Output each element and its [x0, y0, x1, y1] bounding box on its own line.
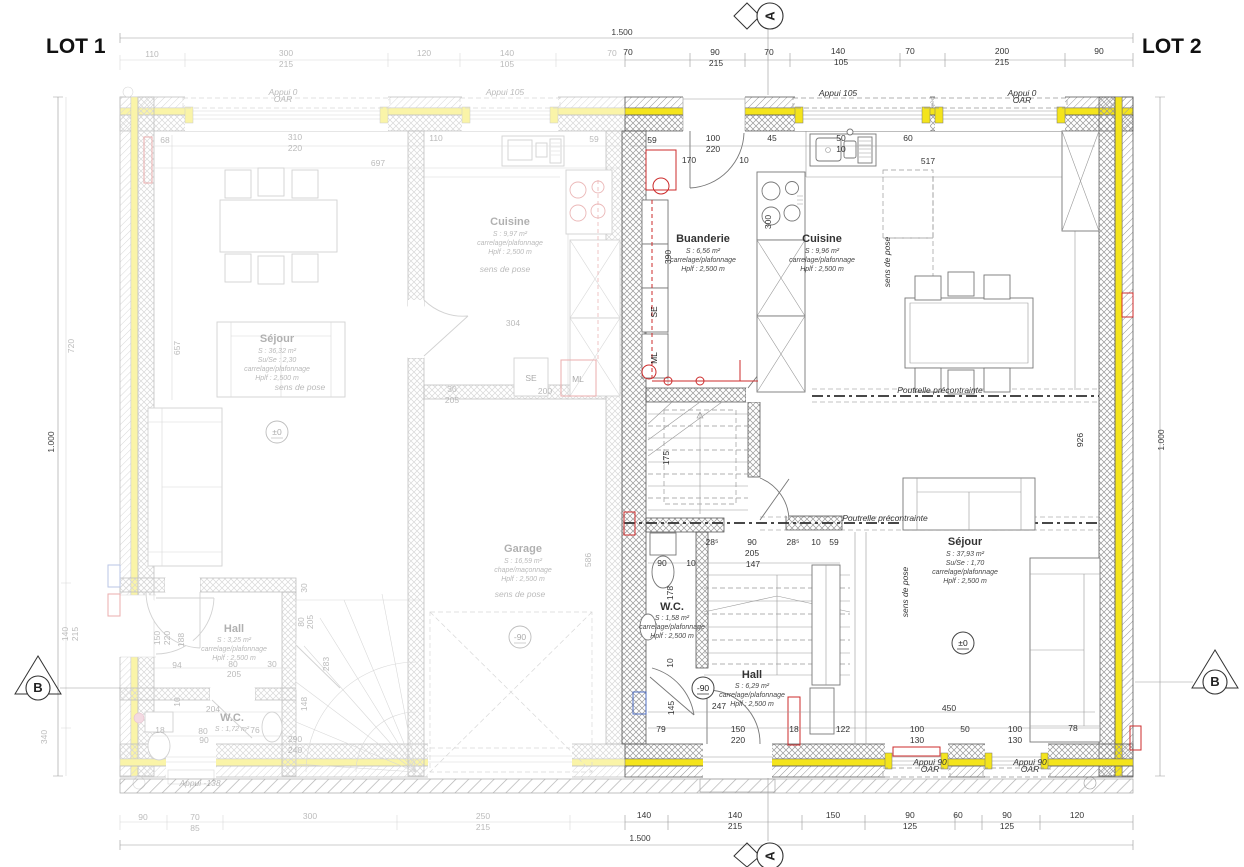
dimension-label: OAR	[274, 94, 292, 104]
svg-text:Hplf : 2,500 m: Hplf : 2,500 m	[800, 266, 844, 273]
room-label-lot1-cuisine: Cuisine S : 9,97 m² carrelage/plafonnage…	[477, 216, 543, 256]
room-label-lot1-hall: Hall S : 3,25 m² carrelage/plafonnage Hp…	[201, 623, 267, 662]
dimension-label: 10	[811, 537, 821, 547]
dimension-label: 697	[371, 158, 385, 168]
svg-text:S : 1,72 m²: S : 1,72 m²	[215, 726, 250, 733]
dimension-label: 150	[152, 631, 162, 645]
dimension-label: 215	[476, 822, 490, 832]
dimension-label: 178	[665, 586, 675, 600]
dimension-label: 90	[747, 537, 757, 547]
dimension-label: 60	[953, 810, 963, 820]
dimension-label: 140	[831, 46, 845, 56]
dimension-label: 59	[647, 135, 657, 145]
room-name: Cuisine	[802, 233, 842, 245]
dimension-label: 10	[665, 658, 675, 668]
dimension-label: 926	[1075, 433, 1085, 447]
svg-text:S : 16,59 m²: S : 16,59 m²	[504, 558, 543, 565]
dimension-label: 110	[429, 133, 443, 143]
room-name: Garage	[504, 543, 542, 555]
dimension-label: 215	[995, 57, 1009, 67]
dimension-label: 148	[299, 697, 309, 711]
dimension-label: 90	[905, 810, 915, 820]
dimension-label: sens de pose	[900, 566, 910, 617]
lot1-title: LOT 1	[46, 35, 106, 58]
dimension-label: 170	[682, 155, 696, 165]
svg-text:B: B	[33, 680, 42, 695]
dimension-label: 94	[172, 660, 182, 670]
svg-text:-90: -90	[514, 632, 527, 642]
dimension-label: 130	[910, 735, 924, 745]
dimension-label: 304	[506, 318, 520, 328]
room-label-lot1-wc: W.C. S : 1,72 m²	[215, 712, 250, 733]
dimension-label: 70	[623, 47, 633, 57]
dimension-label: 125	[1000, 821, 1014, 831]
level-marker-lot1-garage: -90	[509, 626, 531, 648]
dimension-label: 145	[666, 701, 676, 715]
dimension-label: 140	[728, 810, 742, 820]
dimension-label: 10	[836, 144, 846, 154]
dimension-label: 100	[910, 724, 924, 734]
dimension-label: OAR	[921, 764, 939, 774]
dimension-label: 720	[66, 339, 76, 353]
dimension-label: 105	[834, 57, 848, 67]
room-label-lot2-buanderie: Buanderie S : 6,56 m² carrelage/plafonna…	[670, 233, 736, 273]
level-marker-lot1-sejour: ±0	[266, 421, 288, 443]
room-name: W.C.	[220, 712, 244, 724]
dimension-label: 215	[70, 627, 80, 641]
svg-text:±0: ±0	[272, 427, 282, 437]
section-marker-a-bottom: A	[734, 843, 783, 867]
dimension-label: Poutrelle précontrainte	[842, 513, 928, 523]
dimension-label: Poutrelle précontrainte	[897, 385, 983, 395]
dimension-label: 204	[206, 704, 220, 714]
svg-text:±0: ±0	[958, 638, 968, 648]
dimension-label: 125	[903, 821, 917, 831]
room-name: W.C.	[660, 601, 684, 613]
dimension-label: 60	[903, 133, 913, 143]
dimension-label: 220	[288, 143, 302, 153]
dimension-label: 78	[1068, 723, 1078, 733]
dimension-label: 30	[267, 659, 277, 669]
room-name: Hall	[224, 623, 244, 635]
svg-text:S : 1,58 m²: S : 1,58 m²	[655, 615, 690, 622]
dimension-label: 1.000	[1156, 429, 1166, 451]
svg-text:S : 6,56 m²: S : 6,56 m²	[686, 248, 721, 255]
dimension-label: 90	[1002, 810, 1012, 820]
dimension-label: 70	[190, 812, 200, 822]
dimension-label: sens de pose	[480, 264, 531, 274]
dimension-label: 200	[995, 46, 1009, 56]
dimension-label: 205	[305, 615, 315, 629]
dimension-label: 85	[190, 823, 200, 833]
dimension-label: 10	[172, 697, 182, 707]
svg-text:carrelage/plafonnage: carrelage/plafonnage	[244, 366, 310, 373]
svg-text:S : 9,96 m²: S : 9,96 m²	[805, 248, 840, 255]
dimension-label: 215	[728, 821, 742, 831]
dimension-label: 657	[172, 341, 182, 355]
svg-text:S : 36,32 m²: S : 36,32 m²	[258, 348, 297, 355]
svg-text:carrelage/plafonnage: carrelage/plafonnage	[670, 257, 736, 264]
svg-text:carrelage/plafonnage: carrelage/plafonnage	[201, 646, 267, 653]
appliance-label-se: SE	[649, 306, 659, 318]
dimension-label: 150	[731, 724, 745, 734]
dimension-label: 250	[476, 811, 490, 821]
svg-text:Hplf : 2,500 m: Hplf : 2,500 m	[650, 633, 694, 640]
svg-text:S : 6,29 m²: S : 6,29 m²	[735, 683, 770, 690]
svg-text:carrelage/plafonnage: carrelage/plafonnage	[477, 240, 543, 247]
dimension-label: 220	[706, 144, 720, 154]
dimension-label: 50	[836, 133, 846, 143]
dimension-label: 59	[829, 537, 839, 547]
lot2-plan: Buanderie S : 6,56 m² carrelage/plafonna…	[622, 46, 1141, 831]
dimension-label: 18	[789, 724, 799, 734]
dimension-label: 10	[686, 558, 696, 568]
dimension-label: 205	[445, 395, 459, 405]
walkway-strip	[120, 779, 1133, 793]
svg-text:Hplf : 2,500 m: Hplf : 2,500 m	[255, 375, 299, 382]
dimension-label: 586	[583, 553, 593, 567]
lot1-furniture	[108, 87, 620, 789]
dimension-label: 140	[60, 627, 70, 641]
appliance-label-ml: ML	[649, 352, 659, 364]
dimension-label: Appui 105	[818, 88, 858, 98]
dimension-label: 120	[417, 48, 431, 58]
dimension-label: sens de pose	[275, 382, 326, 392]
dimension-label: 1.500	[629, 833, 651, 843]
dimension-label: 130	[1008, 735, 1022, 745]
dimension-label: Appui -138	[178, 778, 220, 788]
dimension-label: 390	[663, 250, 673, 264]
dimension-label: 76	[250, 725, 260, 735]
dimension-label: 300	[279, 48, 293, 58]
svg-text:Su/Se : 2,30: Su/Se : 2,30	[258, 357, 297, 364]
dimension-label: 90	[1094, 46, 1104, 56]
dimension-label: 50	[960, 724, 970, 734]
dimension-label: 30	[299, 583, 309, 593]
lot1-plan: Cuisine S : 9,97 m² carrelage/plafonnage…	[39, 48, 625, 833]
dimension-label: 59	[589, 134, 599, 144]
room-label-lot1-garage: Garage S : 16,59 m² chape/maçonnage Hplf…	[494, 543, 552, 583]
svg-text:S : 3,25 m²: S : 3,25 m²	[217, 637, 252, 644]
svg-text:carrelage/plafonnage: carrelage/plafonnage	[639, 624, 705, 631]
svg-text:-90: -90	[697, 683, 710, 693]
dimension-label: OAR	[1013, 95, 1031, 105]
dimension-label: 215	[279, 59, 293, 69]
svg-text:A: A	[763, 11, 778, 21]
dimension-label: 70	[905, 46, 915, 56]
dimension-label: 120	[1070, 810, 1084, 820]
svg-text:carrelage/plafonnage: carrelage/plafonnage	[932, 569, 998, 576]
svg-text:carrelage/plafonnage: carrelage/plafonnage	[719, 692, 785, 699]
svg-text:S : 37,93 m²: S : 37,93 m²	[946, 551, 985, 558]
dimension-label: 150	[826, 810, 840, 820]
dimension-label: 220	[731, 735, 745, 745]
dimension-label: 188	[176, 633, 186, 647]
dimension-label: 175	[661, 451, 671, 465]
dimension-label: 140	[500, 48, 514, 58]
appliance-label-se: SE	[525, 373, 537, 383]
dimension-label: 205	[227, 669, 241, 679]
svg-text:Su/Se : 1,70: Su/Se : 1,70	[946, 560, 985, 567]
section-marker-a-top: A	[734, 3, 783, 29]
svg-text:Hplf : 2,500 m: Hplf : 2,500 m	[943, 578, 987, 585]
svg-text:Hplf : 2,500 m: Hplf : 2,500 m	[488, 249, 532, 256]
dimension-label: 90	[199, 735, 209, 745]
dimension-label: 30	[447, 384, 457, 394]
dimension-label: 215	[709, 58, 723, 68]
floorplan-drawing: LOT 1 LOT 2	[0, 0, 1244, 867]
dimension-label: 517	[921, 156, 935, 166]
svg-text:Hplf : 2,500 m: Hplf : 2,500 m	[681, 266, 725, 273]
room-name: Cuisine	[490, 216, 530, 228]
dimension-label: 147	[746, 559, 760, 569]
section-marker-b-right: B	[1192, 650, 1238, 694]
svg-text:S : 9,97 m²: S : 9,97 m²	[493, 231, 528, 238]
dimension-label: 200	[538, 386, 552, 396]
dimension-label: 340	[39, 730, 49, 744]
room-name: Hall	[742, 669, 762, 681]
dimension-label: 205	[745, 548, 759, 558]
room-name: Buanderie	[676, 233, 730, 245]
svg-text:Hplf : 2,500 m: Hplf : 2,500 m	[501, 576, 545, 583]
dimension-label: 70	[607, 48, 617, 58]
dimension-label: 290	[288, 734, 302, 744]
dimension-label: 28⁵	[787, 537, 800, 547]
dimension-label: 45	[767, 133, 777, 143]
dimension-label: 79	[656, 724, 666, 734]
svg-text:chape/maçonnage: chape/maçonnage	[494, 567, 552, 574]
dimension-label: 80	[228, 659, 238, 669]
dimension-label: 100	[706, 133, 720, 143]
dimension-label: 247	[712, 701, 726, 711]
dimension-label: 220	[162, 631, 172, 645]
level-marker-lot2-sejour: ±0	[952, 632, 974, 654]
dimension-label: OAR	[1021, 764, 1039, 774]
section-marker-b-left: B	[15, 656, 61, 700]
dimension-label: Appui 105	[485, 87, 525, 97]
svg-text:A: A	[763, 851, 778, 861]
dimension-label: 18	[155, 725, 165, 735]
appliance-label-ml: ML	[572, 374, 584, 384]
svg-text:B: B	[1210, 674, 1219, 689]
lot2-title: LOT 2	[1142, 35, 1202, 58]
svg-text:carrelage/plafonnage: carrelage/plafonnage	[789, 257, 855, 264]
dimension-label: sens de pose	[882, 236, 892, 287]
room-name: Séjour	[260, 333, 295, 345]
dimension-label: 68	[160, 135, 170, 145]
dimension-label: 240	[288, 745, 302, 755]
dimension-label: 300	[763, 215, 773, 229]
dimension-label: 90	[138, 812, 148, 822]
room-name: Séjour	[948, 536, 983, 548]
dimension-label: 310	[288, 132, 302, 142]
dimension-label: 70	[764, 47, 774, 57]
level-marker-lot2-hall: -90	[692, 677, 714, 699]
dimension-label: 110	[145, 49, 159, 59]
dimension-label: 90	[710, 47, 720, 57]
dimension-label: 1.000	[46, 431, 56, 453]
dimension-label: 283	[321, 657, 331, 671]
dimension-label: 450	[942, 703, 956, 713]
floorplan-page: LOT 1 LOT 2	[0, 0, 1244, 867]
dimension-label: 122	[836, 724, 850, 734]
room-label-lot2-sejour: Séjour S : 37,93 m² Su/Se : 1,70 carrela…	[932, 536, 998, 585]
dimension-label: 100	[1008, 724, 1022, 734]
dimension-label: 90	[657, 558, 667, 568]
svg-text:Hplf : 2,500 m: Hplf : 2,500 m	[730, 701, 774, 708]
dimension-label: sens de pose	[495, 589, 546, 599]
dimension-label: 10	[739, 155, 749, 165]
dimension-label: 105	[500, 59, 514, 69]
dimension-label: 28⁵	[706, 537, 719, 547]
dimension-label: 300	[303, 811, 317, 821]
dimension-label: 140	[637, 810, 651, 820]
dimension-label: 1.500	[611, 27, 633, 37]
